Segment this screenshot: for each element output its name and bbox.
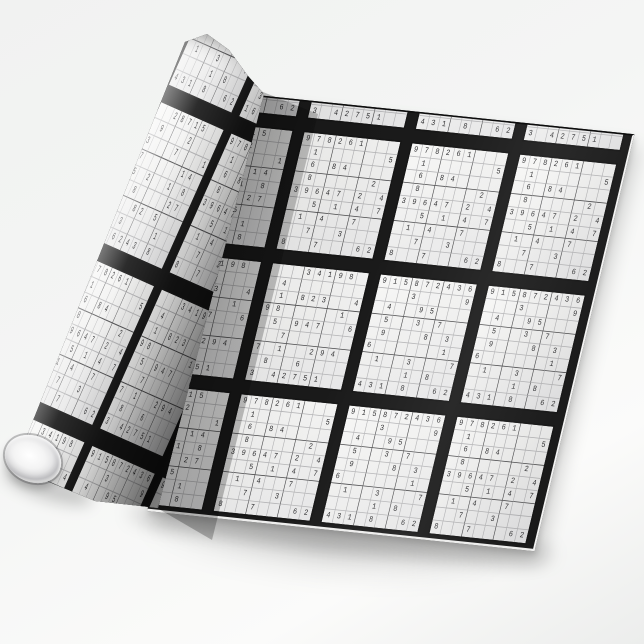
sudoku-cell — [84, 200, 98, 219]
sudoku-cell — [448, 348, 462, 362]
sudoku-cell — [0, 289, 1, 308]
sudoku-cell — [72, 532, 86, 551]
sudoku-cell — [42, 276, 56, 295]
sudoku-cell — [175, 0, 189, 17]
sudoku-cell: 2 — [367, 94, 381, 98]
sudoku-cell: 4 — [389, 94, 403, 101]
sudoku-cell: 6 — [70, 252, 84, 271]
sudoku-cell — [294, 14, 308, 33]
sudoku-cell: 8 — [35, 236, 49, 255]
sudoku-cell — [112, 26, 126, 45]
sudoku-cell: 1 — [119, 10, 133, 29]
sudoku-cell: 6 — [64, 191, 78, 210]
sudoku-cell — [126, 32, 140, 51]
sudoku-cell: 6 — [140, 0, 154, 1]
sudoku-cell: 8 — [99, 38, 113, 57]
sudoku-cell — [36, 179, 50, 198]
sudoku-cell — [112, 102, 126, 121]
sudoku-cell — [161, 47, 175, 66]
sudoku-cell — [454, 322, 468, 336]
sudoku-cell — [8, 335, 22, 354]
sudoku-cell: 9 — [84, 182, 98, 201]
sudoku-cell — [533, 452, 547, 466]
sudoku-cell: 6 — [571, 295, 585, 309]
sudoku-cell — [612, 123, 626, 137]
sudoku-cell — [57, 133, 71, 152]
sudoku-cell: 9 — [77, 142, 91, 161]
sudoku-cell — [294, 51, 308, 70]
sudoku-cell — [70, 157, 84, 176]
sudoku-cell — [197, 470, 211, 484]
sudoku-cell — [57, 151, 71, 170]
sudoku-cell — [79, 554, 93, 573]
sudoku-cell: 8 — [43, 182, 57, 201]
sudoku-cell — [163, 536, 177, 555]
sudoku-cell — [497, 98, 511, 112]
sudoku-cell — [50, 185, 64, 204]
sudoku-cell — [22, 510, 36, 529]
sudoku-cell: 2 — [299, 507, 313, 521]
sudoku-cell: 2 — [501, 125, 515, 139]
sudoku-cell: 7 — [371, 206, 385, 220]
sudoku-cell — [119, 105, 133, 124]
sudoku-cell — [8, 317, 22, 336]
sudoku-cell: 6 — [432, 414, 446, 428]
sudoku-puzzle-tile: 915872436394955379836113718431862 — [459, 284, 586, 414]
sudoku-cell: 4 — [149, 548, 163, 567]
sudoku-cell: 8 — [133, 92, 147, 111]
sudoku-cell — [231, 0, 245, 5]
sudoku-cell: 6 — [8, 372, 22, 391]
sudoku-cell: 7 — [35, 292, 49, 311]
sudoku-cell: 4 — [133, 16, 147, 35]
sudoku-cell — [238, 8, 252, 27]
sudoku-cell — [350, 2, 364, 21]
sudoku-cell: 8 — [315, 0, 329, 5]
sudoku-cell: 4 — [43, 200, 57, 219]
sudoku-cell — [593, 202, 607, 216]
sudoku-cell — [37, 554, 51, 573]
sudoku-cell: 4 — [84, 145, 98, 164]
sudoku-cell — [322, 27, 336, 46]
sudoku-cell — [120, 517, 134, 536]
sudoku-cell — [451, 335, 465, 349]
sudoku-cell — [315, 79, 329, 98]
sudoku-cell: 4 — [374, 193, 388, 207]
sudoku-cell — [119, 123, 133, 142]
sudoku-puzzle-tile: 915872436394955379836113718431862 — [414, 94, 541, 140]
sudoku-cell: 8 — [372, 49, 384, 68]
sudoku-cell — [329, 30, 343, 49]
sudoku-cell — [156, 570, 170, 575]
sudoku-cell — [29, 513, 43, 532]
sudoku-cell — [565, 320, 579, 334]
sudoku-cell — [0, 273, 8, 292]
sudoku-cell — [266, 182, 280, 196]
sudoku-cell: 1 — [149, 567, 163, 575]
sudoku-cell — [35, 255, 49, 274]
sudoku-cell: 6 — [142, 545, 156, 564]
sudoku-cell — [154, 44, 168, 63]
sudoku-cell: 9 — [63, 117, 77, 136]
sudoku-cell — [259, 0, 273, 17]
sudoku-cell: 7 — [107, 511, 121, 530]
sudoku-cell — [274, 42, 288, 61]
sudoku-cell — [378, 15, 383, 34]
sudoku-cell — [365, 232, 379, 246]
sudoku-cell — [530, 464, 544, 478]
sudoku-cell — [77, 160, 91, 179]
sudoku-cell — [50, 167, 64, 186]
sudoku-cell: 7 — [530, 101, 544, 115]
sudoku-cell — [15, 246, 29, 265]
sudoku-cell: 1 — [2, 557, 16, 575]
sudoku-cell — [2, 482, 16, 501]
sudoku-cell — [98, 188, 112, 207]
sudoku-cell — [56, 283, 70, 302]
sudoku-cell: 1 — [100, 545, 114, 564]
sudoku-cell: 6 — [463, 283, 477, 297]
sudoku-cell — [217, 0, 231, 17]
sudoku-cell — [65, 548, 79, 567]
sudoku-cell — [238, 300, 252, 314]
sudoku-cell: 4 — [163, 573, 177, 575]
sudoku-cell — [371, 12, 383, 31]
sudoku-cell: 1 — [315, 42, 329, 61]
sudoku-cell — [229, 339, 243, 353]
sudoku-cell — [15, 264, 29, 283]
sudoku-cell — [346, 94, 360, 96]
sudoku-cell — [84, 108, 98, 127]
sudoku-cell — [260, 73, 274, 92]
sudoku-cell — [91, 74, 105, 93]
sudoku-cell: 1 — [301, 54, 315, 73]
sudoku-cell — [586, 94, 600, 108]
sudoku-cell: 7 — [274, 24, 288, 43]
sudoku-cell — [252, 0, 266, 14]
sudoku-cell — [399, 94, 413, 102]
sudoku-cell — [276, 143, 290, 157]
sudoku-cell: 1 — [29, 326, 43, 345]
sudoku-cell: 4 — [184, 564, 198, 575]
sudoku-cell: 7 — [322, 0, 336, 8]
sudoku-cell: 6 — [621, 94, 634, 98]
sudoku-cell — [154, 7, 168, 26]
sudoku-cell: 8 — [267, 76, 281, 95]
sudoku-cell: 9 — [273, 0, 287, 5]
sudoku-cell: 1 — [112, 139, 126, 158]
sudoku-cell — [113, 514, 127, 533]
sudoku-cell — [79, 535, 93, 554]
sudoku-cell — [191, 548, 205, 567]
sudoku-cell — [77, 86, 91, 105]
sudoku-cell — [194, 483, 208, 497]
sudoku-cell: 3 — [140, 38, 154, 57]
sudoku-cell — [352, 285, 366, 299]
sudoku-cell — [84, 71, 98, 90]
sudoku-cell: 1 — [551, 103, 565, 117]
sudoku-cell: 2 — [170, 557, 184, 574]
sudoku-cell — [287, 11, 301, 30]
sudoku-cell: 5 — [599, 176, 613, 190]
sudoku-cell — [489, 94, 503, 98]
sudoku-cell: 8 — [163, 517, 177, 536]
sudoku-cell: 3 — [36, 310, 50, 329]
sudoku-cell — [77, 123, 91, 142]
sudoku-cell — [343, 17, 357, 36]
sudoku-cell — [337, 70, 351, 89]
sudoku-cell: 7 — [100, 563, 114, 574]
sudoku-cell — [252, 32, 266, 51]
sudoku-puzzle-tile: 978261156848239647245147147738762 — [212, 393, 339, 523]
sudoku-cell — [357, 94, 371, 97]
sudoku-cell: 2 — [438, 387, 452, 401]
sudoku-cell: 9 — [135, 542, 149, 561]
sudoku-cell: 2 — [281, 45, 295, 64]
sudoku-cell — [57, 188, 71, 207]
sudoku-cell: 4 — [112, 83, 126, 102]
sudoku-cell — [91, 204, 105, 223]
sudoku-cell — [618, 97, 632, 111]
sudoku-cell — [364, 9, 378, 28]
sudoku-cell — [247, 261, 261, 275]
sudoku-cell: 3 — [128, 539, 142, 558]
sudoku-cell: 5 — [35, 273, 49, 292]
sudoku-cell: 2 — [98, 114, 112, 133]
sudoku-cell — [196, 8, 210, 27]
sudoku-cell — [72, 569, 86, 574]
sudoku-cell — [573, 106, 587, 120]
sudoku-cell — [15, 320, 29, 339]
sudoku-cell — [22, 360, 36, 379]
sudoku-cell — [44, 557, 58, 574]
sudoku-cell: 3 — [465, 94, 479, 108]
sudoku-cell: 3 — [245, 29, 259, 48]
sudoku-cell — [0, 307, 1, 326]
sudoku-cell — [128, 557, 142, 574]
sudoku-cell: 6 — [343, 324, 357, 338]
sudoku-cell — [584, 241, 598, 255]
sudoku-cell — [351, 76, 365, 95]
sudoku-cell — [1, 313, 15, 332]
sudoku-cell: 9 — [429, 427, 443, 441]
sudoku-cell: 7 — [154, 26, 168, 45]
sudoku-cell — [51, 560, 65, 574]
sudoku-cell — [488, 178, 502, 192]
sudoku-cell: 1 — [65, 566, 79, 574]
sudoku-cell — [422, 94, 436, 104]
sudoku-cell: 3 — [28, 252, 42, 271]
sudoku-cell: 5 — [133, 0, 147, 16]
sudoku-cell — [78, 197, 92, 216]
sudoku-cell — [91, 130, 105, 149]
sudoku-cell: 3 — [63, 249, 77, 268]
sudoku-cell — [287, 48, 301, 67]
sudoku-cell: 7 — [308, 20, 322, 39]
sudoku-cell — [161, 0, 175, 10]
sudoku-cell: 6 — [112, 157, 126, 176]
sudoku-cell: 1 — [51, 542, 65, 561]
sudoku-cell: 8 — [315, 61, 329, 80]
sudoku-cell — [1, 351, 15, 370]
sudoku-cell — [443, 94, 457, 106]
sudoku-cell — [478, 94, 492, 97]
sudoku-cell — [8, 242, 22, 261]
sudoku-cell — [379, 70, 384, 89]
sudoku-cell — [56, 264, 70, 283]
sudoku-cell — [79, 517, 93, 536]
sudoku-cell: 7 — [175, 17, 189, 36]
sudoku-cell: 4 — [23, 529, 37, 548]
sudoku-cell: 2 — [515, 529, 529, 543]
sudoku-cell — [387, 141, 401, 155]
sudoku-cell — [294, 70, 308, 89]
sudoku-cell: 4 — [182, 1, 196, 20]
sudoku-cell — [65, 492, 79, 511]
sudoku-cell — [115, 570, 129, 575]
sudoku-cell: 1 — [210, 418, 224, 432]
sudoku-cell — [232, 326, 246, 340]
sudoku-cell — [0, 476, 2, 495]
sudoku-cell: 2 — [184, 545, 198, 564]
sudoku-cell: 5 — [0, 479, 8, 498]
sudoku-cell — [161, 29, 175, 48]
sudoku-cell — [0, 516, 9, 535]
sudoku-cell — [203, 444, 217, 458]
sudoku-cell — [0, 344, 1, 363]
sudoku-cell — [308, 2, 322, 21]
sudoku-cell — [294, 33, 308, 52]
sudoku-cell: 7 — [552, 372, 566, 386]
sudoku-cell — [44, 538, 58, 557]
sudoku-cell — [22, 341, 36, 360]
sudoku-cell — [416, 479, 430, 493]
sudoku-cell: 9 — [358, 80, 372, 99]
sudoku-cell — [454, 94, 468, 107]
sudoku-cell — [485, 191, 499, 205]
sudoku-cell: 4 — [241, 287, 255, 301]
sudoku-puzzle-tile: 915872436394955379836113718431862 — [320, 404, 447, 534]
sudoku-cell: 5 — [384, 154, 398, 168]
sudoku-cell: 5 — [64, 210, 78, 229]
sudoku-cell: 2 — [285, 102, 299, 116]
sudoku-cell — [70, 102, 84, 121]
sudoku-cell — [98, 170, 112, 189]
sudoku-cell — [365, 46, 379, 65]
sudoku-cell — [30, 532, 44, 551]
sudoku-cell: 5 — [491, 165, 505, 179]
sudoku-cell — [8, 298, 22, 317]
sudoku-cell — [121, 554, 135, 573]
sudoku-cell — [188, 0, 202, 4]
sudoku-cell: 7 — [308, 468, 322, 482]
sudoku-cell — [379, 89, 384, 108]
sudoku-cell: 6 — [235, 313, 249, 327]
sudoku-cell — [36, 197, 50, 216]
sudoku-cell: 3 — [72, 551, 86, 570]
sudoku-cell — [37, 366, 51, 385]
sudoku-cell: 2 — [274, 79, 288, 98]
sudoku-cell — [288, 67, 302, 86]
sudoku-cell: 6 — [43, 501, 57, 520]
sudoku-cell — [142, 564, 156, 575]
sudoku-cell — [611, 94, 625, 97]
sudoku-cell — [184, 527, 198, 546]
sudoku-cell — [126, 13, 140, 32]
sudoku-cell: 9 — [294, 0, 308, 14]
sudoku-cell: 8 — [231, 23, 245, 42]
sudoku-cell — [336, 14, 350, 33]
sudoku-cell: 5 — [210, 0, 224, 14]
sudoku-cell — [58, 508, 72, 527]
sudoku-cell: 9 — [126, 89, 140, 108]
sudoku-cell: 9 — [9, 486, 23, 505]
sudoku-cell: 9 — [344, 55, 358, 74]
sudoku-cell — [29, 495, 43, 514]
sudoku-cell — [308, 57, 322, 76]
sudoku-cell: 9 — [28, 270, 42, 289]
sudoku-cell — [343, 0, 357, 17]
sudoku-cell — [279, 130, 293, 144]
sudoku-cell: 7 — [119, 29, 133, 48]
sudoku-cell — [495, 152, 509, 166]
sudoku-cell: 4 — [364, 27, 378, 46]
sudoku-cell — [393, 114, 407, 128]
sudoku-cell: 5 — [28, 233, 42, 252]
sudoku-puzzle-tile: 978261156848239647245147147738762 — [491, 153, 618, 283]
sudoku-cell — [378, 33, 383, 52]
sudoku-cell — [86, 501, 100, 520]
sudoku-cell — [15, 338, 29, 357]
sudoku-cell — [314, 442, 328, 456]
sudoku-cell — [351, 39, 365, 58]
sudoku-cell: 9 — [203, 11, 217, 30]
sudoku-cell — [0, 366, 8, 385]
sudoku-cell — [609, 136, 623, 150]
sudoku-cell — [210, 14, 224, 33]
sudoku-cell: 2 — [362, 245, 376, 259]
sudoku-cell — [84, 163, 98, 182]
sudoku-cell — [22, 323, 36, 342]
sudoku-cell: 2 — [168, 0, 182, 13]
sudoku-cell — [0, 495, 2, 514]
sudoku-cell: 1 — [335, 94, 349, 95]
sudoku-cell: 3 — [105, 80, 119, 99]
sudoku-cell — [112, 120, 126, 139]
sudoku-cell: 8 — [142, 527, 156, 546]
sudoku-cell: 9 — [568, 307, 582, 321]
sudoku-cell — [105, 99, 119, 118]
sudoku-cell — [2, 501, 16, 520]
sudoku-cell — [93, 560, 107, 574]
sudoku-cell: 1 — [433, 94, 447, 105]
sudoku-cell — [475, 96, 489, 110]
sudoku-cell — [168, 13, 182, 32]
sudoku-cell: 1 — [358, 42, 372, 61]
sudoku-cell: 1 — [0, 513, 2, 532]
sudoku-cell: 7 — [0, 498, 9, 517]
sudoku-cell — [315, 5, 329, 24]
sudoku-cell — [86, 557, 100, 574]
sudoku-cell: 2 — [546, 398, 560, 412]
sudoku-cell: 5 — [204, 517, 218, 536]
sudoku-cell: 8 — [351, 58, 365, 77]
sudoku-cell: 2 — [578, 267, 592, 281]
sudoku-cell: 7 — [57, 207, 71, 226]
sudoku-cell: 2 — [301, 73, 315, 92]
sudoku-cell: 2 — [470, 256, 484, 270]
sudoku-cell — [581, 254, 595, 268]
